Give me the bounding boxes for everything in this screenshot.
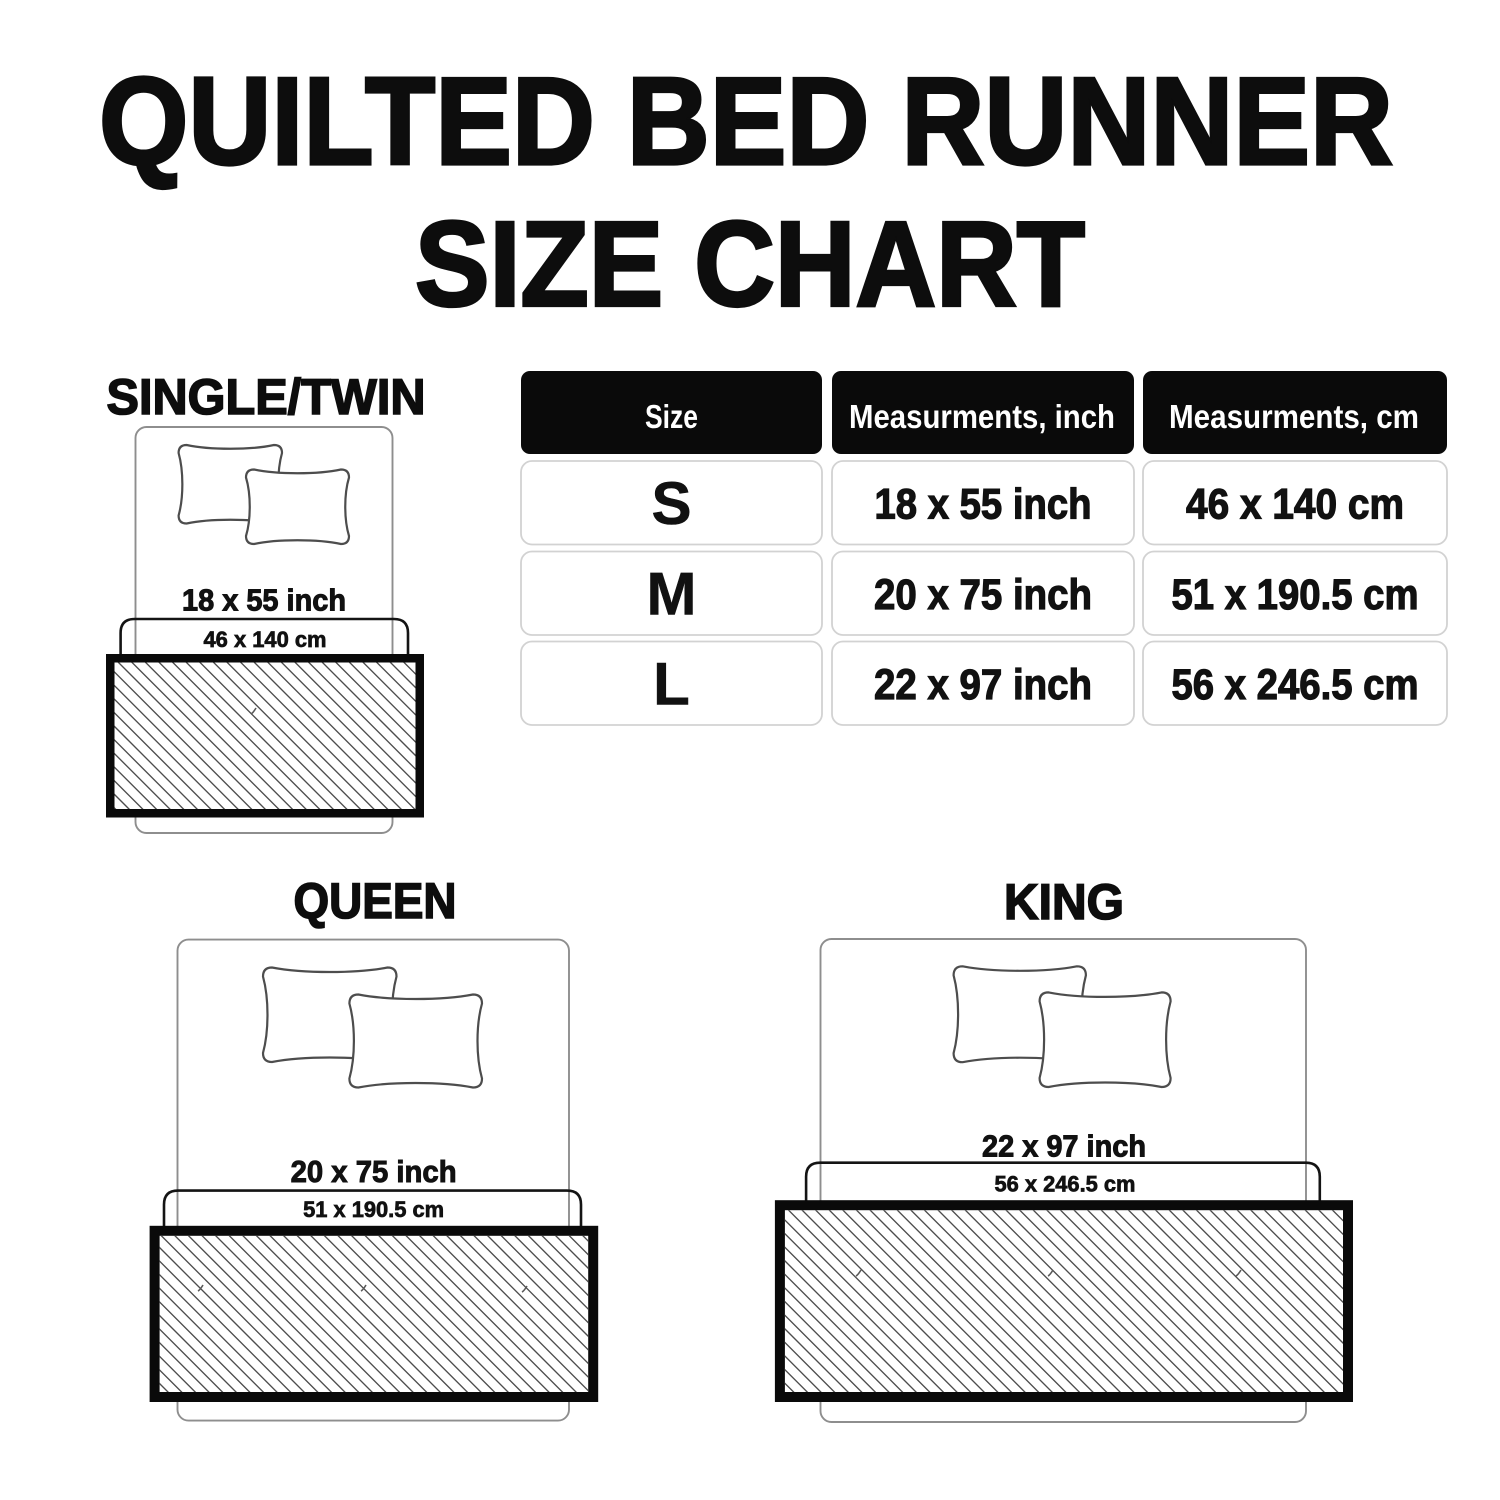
svg-text:SIZE CHART: SIZE CHART [415, 196, 1085, 332]
svg-text:22 x 97 inch: 22 x 97 inch [982, 1128, 1146, 1163]
svg-text:QUILTED BED RUNNER: QUILTED BED RUNNER [99, 52, 1393, 191]
svg-text:46 x 140 cm: 46 x 140 cm [204, 627, 327, 652]
svg-text:46 x 140 cm: 46 x 140 cm [1186, 481, 1404, 528]
svg-text:L: L [653, 651, 690, 718]
svg-text:S: S [651, 470, 691, 537]
svg-text:22 x 97 inch: 22 x 97 inch [874, 662, 1092, 709]
svg-text:Size: Size [645, 398, 698, 435]
svg-text:51 x 190.5 cm: 51 x 190.5 cm [303, 1197, 444, 1222]
svg-text:SINGLE/TWIN: SINGLE/TWIN [107, 369, 426, 425]
svg-text:20 x 75 inch: 20 x 75 inch [874, 572, 1092, 619]
svg-text:20 x 75 inch: 20 x 75 inch [291, 1154, 457, 1189]
svg-text:KING: KING [1004, 874, 1124, 930]
svg-text:QUEEN: QUEEN [294, 873, 457, 929]
svg-text:51 x 190.5 cm: 51 x 190.5 cm [1172, 572, 1419, 619]
svg-text:Measurments, inch: Measurments, inch [849, 398, 1115, 435]
svg-text:18 x 55 inch: 18 x 55 inch [182, 583, 346, 618]
svg-text:Measurments, cm: Measurments, cm [1169, 398, 1419, 435]
svg-text:56 x 246.5 cm: 56 x 246.5 cm [995, 1172, 1136, 1197]
svg-text:M: M [647, 561, 697, 628]
svg-text:56 x 246.5 cm: 56 x 246.5 cm [1172, 662, 1419, 709]
svg-text:18 x 55 inch: 18 x 55 inch [875, 481, 1092, 528]
